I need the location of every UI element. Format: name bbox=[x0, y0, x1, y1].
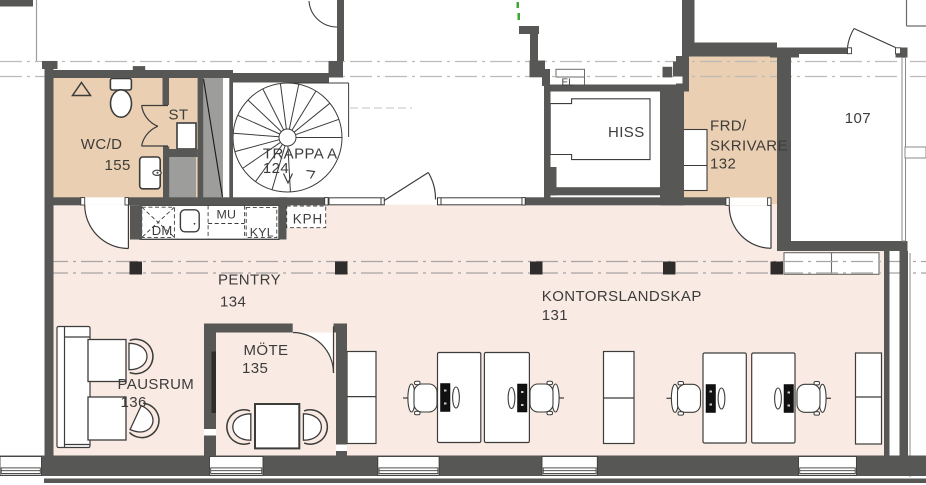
svg-text:MU: MU bbox=[217, 208, 237, 222]
svg-text:135: 135 bbox=[242, 360, 268, 377]
svg-text:KONTORSLANDSKAP: KONTORSLANDSKAP bbox=[542, 288, 702, 305]
svg-text:EL: EL bbox=[562, 77, 575, 88]
svg-text:107: 107 bbox=[845, 110, 871, 127]
svg-text:KPH: KPH bbox=[293, 212, 323, 227]
svg-text:155: 155 bbox=[105, 157, 131, 174]
svg-text:ST: ST bbox=[169, 107, 189, 124]
svg-text:PENTRY: PENTRY bbox=[218, 272, 281, 289]
svg-text:FRD/: FRD/ bbox=[710, 118, 747, 135]
svg-text:DM: DM bbox=[152, 223, 173, 238]
svg-text:SKRIVARE: SKRIVARE bbox=[710, 138, 788, 155]
svg-text:MÖTE: MÖTE bbox=[244, 341, 289, 359]
svg-text:136: 136 bbox=[121, 394, 147, 411]
svg-text:132: 132 bbox=[710, 156, 736, 173]
svg-text:131: 131 bbox=[542, 307, 568, 324]
svg-text:PAUSRUM: PAUSRUM bbox=[118, 376, 195, 393]
svg-text:124: 124 bbox=[263, 160, 289, 177]
svg-text:KYL: KYL bbox=[250, 226, 274, 240]
svg-text:WC/D: WC/D bbox=[81, 136, 123, 153]
svg-text:HISS: HISS bbox=[608, 124, 645, 141]
svg-text:134: 134 bbox=[220, 294, 246, 311]
